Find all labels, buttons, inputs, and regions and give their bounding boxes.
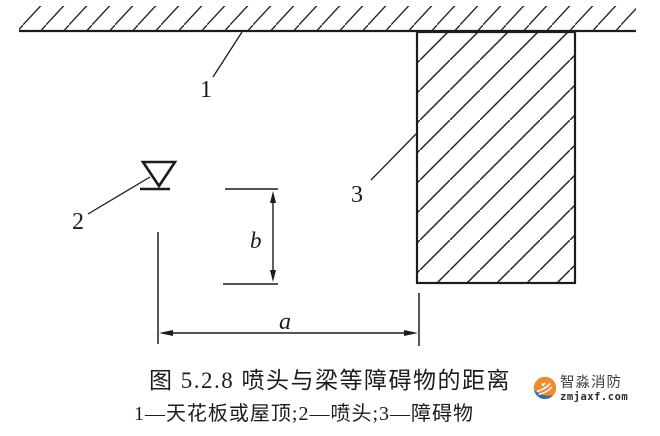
brand-text: 智淼消防 zmjaxf.com xyxy=(560,376,628,402)
brand-logo-icon xyxy=(533,376,557,400)
brand-watermark: 智淼消防 zmjaxf.com xyxy=(533,376,628,402)
dim-a-arrowhead-left xyxy=(159,330,173,336)
sprinkler-obstruction-diagram: 1 2 3 b a xyxy=(0,0,660,358)
leader-line-ceiling xyxy=(213,32,242,77)
dim-a-label: a xyxy=(279,309,291,335)
ceiling-hatching xyxy=(19,6,636,31)
label-1: 1 xyxy=(200,77,212,103)
leader-line-sprinkler xyxy=(88,177,150,214)
dim-b-label: b xyxy=(250,228,262,253)
figure-page: 1 2 3 b a 图 5.2.8 喷头与梁等障碍物的距离 1—天花板或屋顶;2… xyxy=(0,0,660,436)
sprinkler-icon xyxy=(143,162,175,186)
label-2: 2 xyxy=(72,209,84,235)
dim-a-arrowhead-right xyxy=(404,330,418,336)
dim-b-arrowhead-top xyxy=(270,191,276,203)
brand-domain: zmjaxf.com xyxy=(560,392,628,403)
leader-line-obstruction xyxy=(371,134,416,180)
label-3: 3 xyxy=(351,182,363,208)
beam-obstruction xyxy=(417,32,575,283)
dim-b-arrowhead-bottom xyxy=(270,270,276,282)
brand-name: 智淼消防 xyxy=(560,376,628,391)
